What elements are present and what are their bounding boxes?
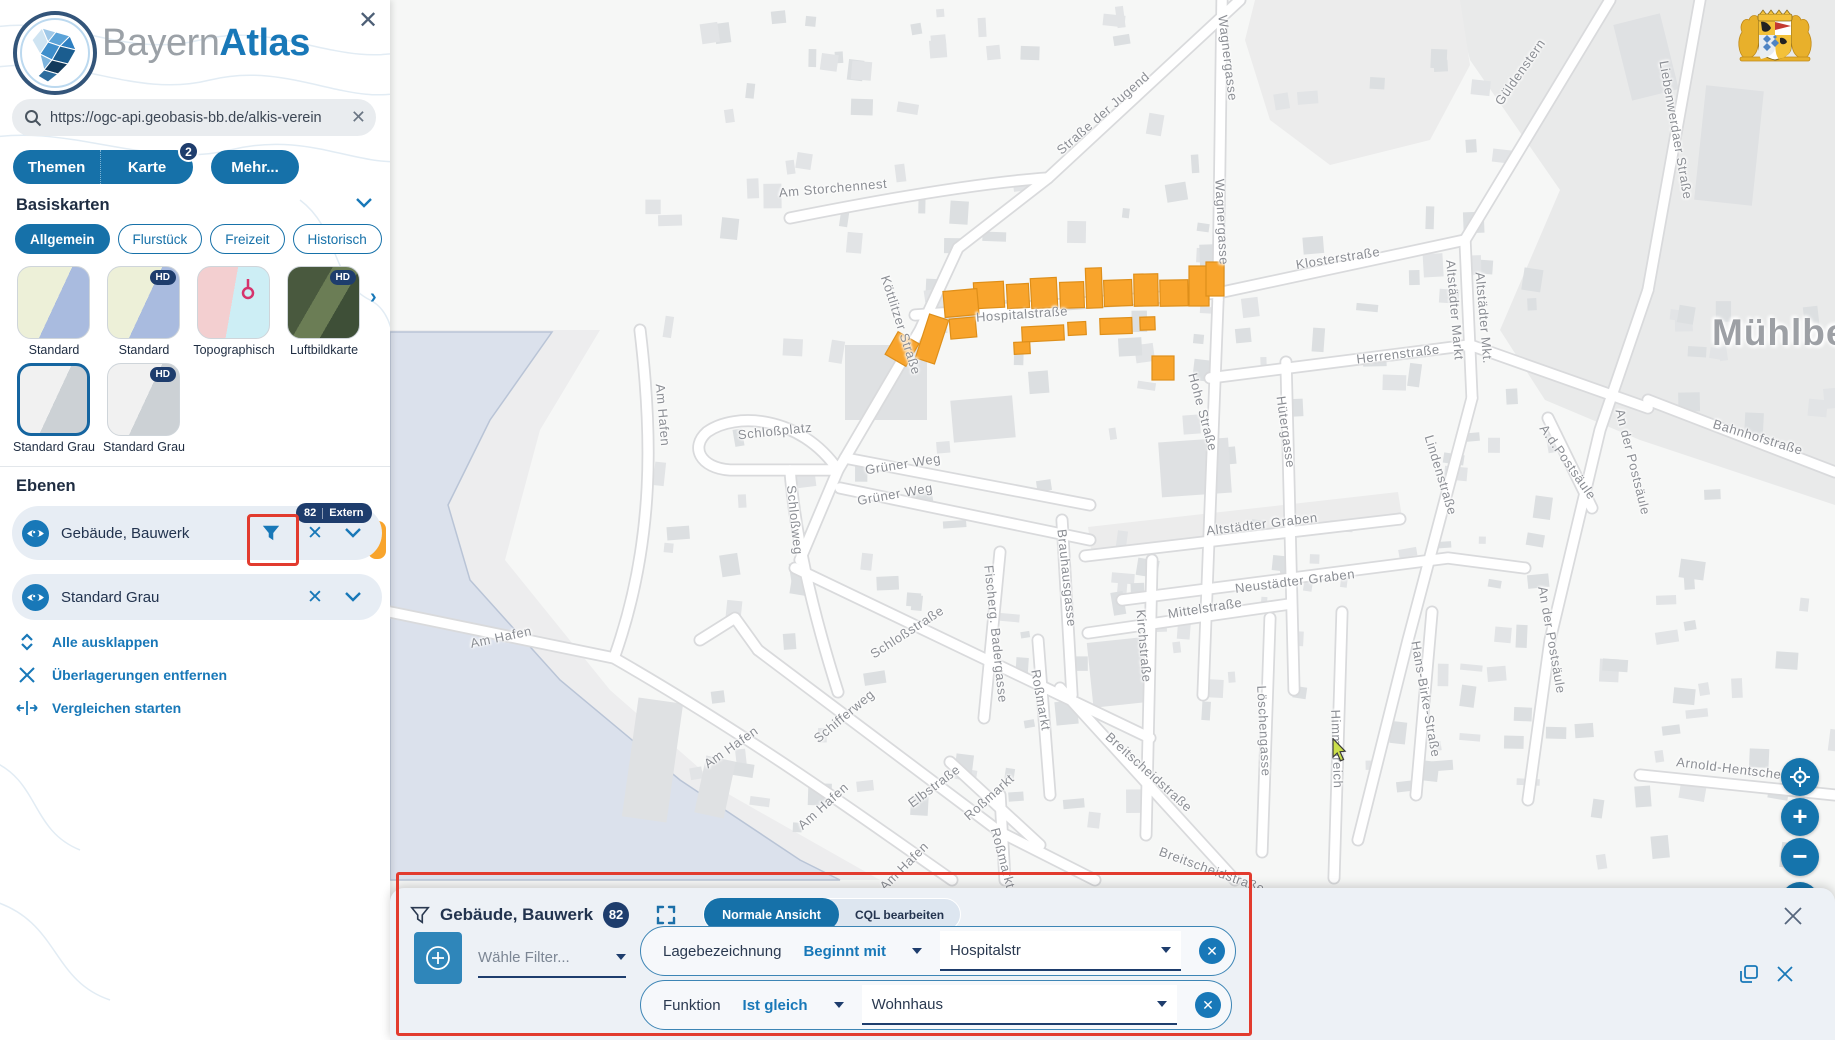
result-count-badge: 82	[603, 902, 629, 928]
filter-value-input[interactable]: Hospitalstr	[940, 931, 1181, 971]
filter-value: Wohnhaus	[872, 996, 1157, 1013]
basemap-label: Standard	[99, 343, 189, 357]
chip-allgemein[interactable]: Allgemein	[15, 224, 110, 254]
basemap-label: Standard Grau	[99, 440, 189, 454]
city-label: Mühlberg	[1712, 312, 1835, 354]
main-tabs: Themen Karte 2 Mehr...	[13, 150, 299, 184]
brand-bayern: Bayern	[102, 22, 219, 64]
remove-overlays-label: Überlagerungen entfernen	[52, 667, 227, 683]
basiskarten-heading: Basiskarten	[16, 196, 110, 215]
filter-operator-select[interactable]: Ist gleich	[743, 997, 808, 1014]
zoom-out-button[interactable]: −	[1781, 838, 1819, 876]
filter-field-label: Lagebezeichnung	[663, 943, 781, 960]
filter-select[interactable]: Wähle Filter...	[478, 938, 626, 978]
tab-mehr[interactable]: Mehr...	[211, 150, 299, 184]
sidebar: ✕ BayernAtlas	[0, 0, 390, 1040]
close-window-icon[interactable]	[1775, 964, 1795, 984]
filter-operator-select[interactable]: Beginnt mit	[803, 943, 886, 960]
layer-label: Standard Grau	[61, 589, 300, 606]
clear-filter-button[interactable]: ✕	[1195, 992, 1221, 1018]
karte-count-badge: 2	[178, 141, 199, 162]
close-panel-icon[interactable]	[1781, 904, 1805, 928]
extern-badge-count: 82	[304, 507, 316, 519]
bayernatlas-logo	[12, 10, 98, 96]
start-compare-label: Vergleichen starten	[52, 700, 181, 716]
caret-down-icon[interactable]	[912, 948, 922, 954]
hd-badge: HD	[330, 270, 356, 285]
caret-down-icon	[616, 954, 626, 960]
basemap-standard-hd[interactable]: HD	[107, 266, 180, 339]
filter-funnel-icon	[410, 905, 430, 925]
mouse-cursor	[1328, 738, 1350, 762]
layer-expand-icon[interactable]	[338, 528, 368, 538]
search-icon	[24, 109, 42, 127]
basemap-label: Topographisch	[189, 343, 279, 357]
ebenen-heading: Ebenen	[16, 477, 76, 496]
hd-badge: HD	[150, 270, 176, 285]
add-filter-button[interactable]	[414, 932, 462, 984]
layer-remove-icon[interactable]: ✕	[300, 522, 330, 545]
expand-all-link[interactable]: Alle ausklappen	[16, 632, 159, 652]
divider	[0, 466, 390, 467]
chip-freizeit[interactable]: Freizeit	[210, 224, 284, 254]
expand-all-label: Alle ausklappen	[52, 634, 159, 650]
geolocate-button[interactable]	[1781, 758, 1819, 796]
layer-label: Gebäude, Bauwerk	[61, 525, 256, 542]
panel-window-buttons	[1739, 964, 1795, 984]
layer-row-standard-grau[interactable]: Standard Grau ✕	[12, 574, 382, 620]
filter-value: Hospitalstr	[950, 942, 1161, 959]
topo-marker-icon	[198, 267, 270, 339]
detach-window-icon[interactable]	[1739, 964, 1759, 984]
tab-karte[interactable]: Karte 2	[101, 150, 193, 184]
basemap-standard-grau-selected[interactable]	[17, 363, 90, 436]
geolocate-icon	[1789, 766, 1811, 788]
clear-filter-button[interactable]: ✕	[1199, 938, 1225, 964]
filter-value-input[interactable]: Wohnhaus	[862, 985, 1177, 1025]
brand-atlas: Atlas	[219, 22, 309, 64]
filter-field-label: Funktion	[663, 997, 721, 1014]
chip-historisch[interactable]: Historisch	[293, 224, 382, 254]
search-clear-icon[interactable]: ✕	[345, 107, 366, 128]
caret-down-icon[interactable]	[834, 1002, 844, 1008]
bayernatlas-app: WagnergasseWagnergasseStraße der JugendA…	[0, 0, 1835, 1040]
plus-circle-icon	[423, 943, 453, 973]
hd-badge: HD	[150, 367, 176, 382]
toggle-cql-bearbeiten[interactable]: CQL bearbeiten	[839, 908, 960, 922]
basemap-label: Standard Grau	[9, 440, 99, 454]
close-sidebar-icon[interactable]: ✕	[354, 6, 382, 34]
start-compare-link[interactable]: Vergleichen starten	[16, 700, 181, 716]
layer-filter-icon[interactable]	[256, 523, 286, 543]
layer-expand-icon[interactable]	[338, 592, 368, 602]
filter-select-placeholder: Wähle Filter...	[478, 949, 570, 966]
search-bar[interactable]: ✕	[12, 99, 376, 136]
fullscreen-icon[interactable]	[655, 904, 677, 926]
basemap-luftbildkarte[interactable]: HD	[287, 266, 360, 339]
basemap-filter-chips: Allgemein Flurstück Freizeit Historisch	[15, 224, 382, 254]
zoom-in-button[interactable]: +	[1781, 798, 1819, 836]
basemap-topographisch[interactable]	[197, 266, 270, 339]
tab-themen[interactable]: Themen	[13, 150, 101, 184]
remove-overlays-icon	[16, 666, 38, 684]
next-basemaps-icon[interactable]: ›	[370, 286, 377, 309]
search-input[interactable]	[50, 110, 345, 126]
layer-remove-icon[interactable]: ✕	[300, 586, 330, 609]
caret-down-icon[interactable]	[1157, 1001, 1167, 1007]
bavaria-coat-of-arms	[1732, 8, 1818, 62]
basemap-label: Standard	[9, 343, 99, 357]
remove-overlays-link[interactable]: Überlagerungen entfernen	[16, 666, 227, 684]
chip-flurstueck[interactable]: Flurstück	[118, 224, 203, 254]
badge-divider	[322, 508, 323, 519]
visibility-eye-icon[interactable]	[22, 520, 49, 547]
river-water	[390, 332, 840, 880]
visibility-eye-icon[interactable]	[22, 584, 49, 611]
filter-panel-title: Gebäude, Bauwerk	[440, 905, 593, 925]
brand-title: BayernAtlas	[102, 22, 310, 65]
chevron-down-icon[interactable]	[356, 198, 372, 208]
filter-row-funktion: Funktion Ist gleich Wohnhaus ✕	[640, 980, 1232, 1030]
basemap-standard[interactable]	[17, 266, 90, 339]
tab-karte-label: Karte	[128, 159, 166, 176]
filter-panel: Gebäude, Bauwerk 82 Normale Ansicht CQL …	[390, 888, 1835, 1040]
caret-down-icon[interactable]	[1161, 947, 1171, 953]
compare-icon	[16, 700, 38, 716]
basemap-label: Luftbildkarte	[279, 343, 369, 357]
expand-all-icon	[16, 632, 38, 652]
filter-row-lagebezeichnung: Lagebezeichnung Beginnt mit Hospitalstr …	[640, 926, 1236, 976]
extern-badge-text: Extern	[329, 507, 363, 519]
basemap-standard-grau-hd[interactable]: HD	[107, 363, 180, 436]
extern-badge: 82 Extern	[296, 503, 372, 523]
field-area	[1245, 0, 1470, 165]
